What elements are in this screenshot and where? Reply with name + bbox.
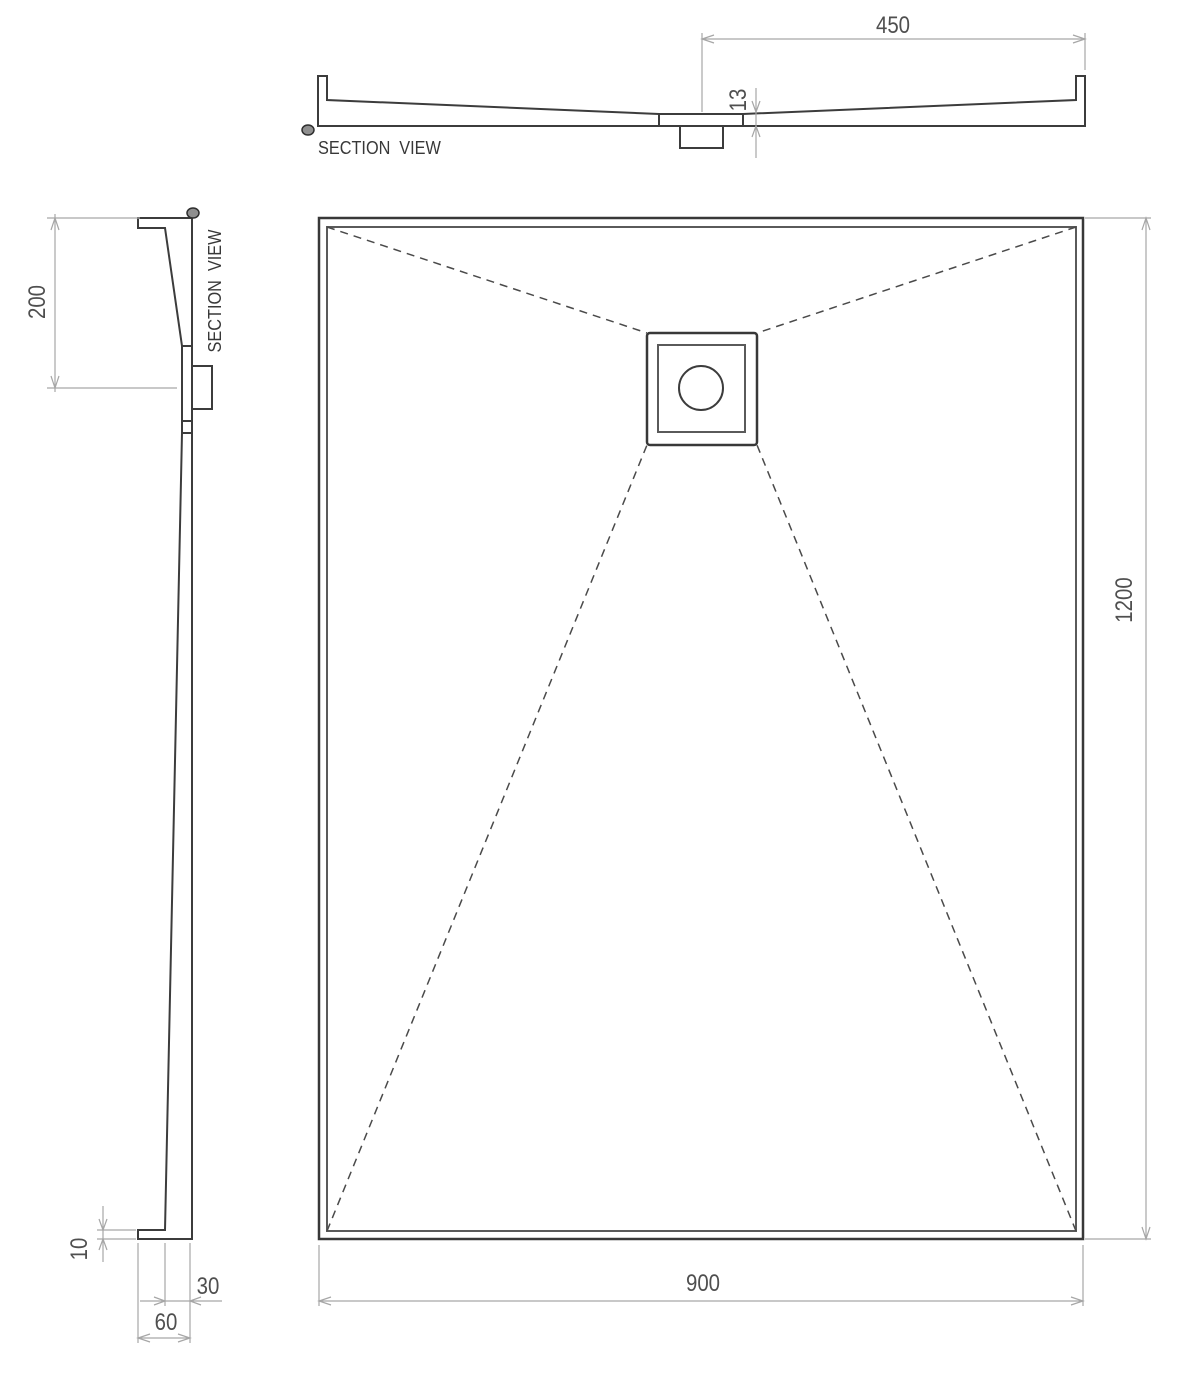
tray-outer-edge — [319, 218, 1083, 1239]
side-section-dimensions — [47, 214, 222, 1343]
side-section-drain-spigot — [192, 366, 212, 409]
dimension-label-450: 450 — [876, 14, 910, 38]
side-section-view-title: SECTION VIEW — [206, 230, 225, 353]
dimension-label-10: 10 — [68, 1238, 92, 1261]
drawing-canvas — [0, 0, 1200, 1388]
top-section-drain-recess-edges — [659, 114, 743, 126]
dimension-label-1200: 1200 — [1113, 577, 1137, 622]
drain-trim-inner — [658, 345, 745, 432]
tray-inner-edge — [327, 227, 1076, 1231]
top-section-dimensions — [702, 33, 1085, 158]
top-section-drain-spigot — [680, 126, 723, 148]
slope-fold-lines — [327, 227, 1076, 1231]
plan-view — [319, 218, 1151, 1306]
side-section-profile — [138, 218, 192, 1239]
dimension-label-200: 200 — [26, 285, 50, 319]
section-cut-marker-icon — [187, 208, 199, 218]
drain-trim-outer — [647, 333, 757, 445]
dimension-label-30: 30 — [197, 1275, 220, 1299]
section-cut-marker-icon — [302, 125, 314, 135]
drain-hole — [679, 366, 723, 410]
dimension-label-13: 13 — [727, 89, 751, 112]
dimension-label-60: 60 — [155, 1311, 178, 1335]
side-section-drain-recess-edges — [182, 346, 192, 433]
dimension-label-900: 900 — [686, 1272, 720, 1296]
cad-drawing-sheet: SECTION VIEW SECTION VIEW 450 13 200 10 … — [0, 0, 1200, 1388]
top-section-view-title: SECTION VIEW — [318, 139, 441, 158]
plan-dimensions — [319, 218, 1151, 1306]
side-section-view — [47, 208, 222, 1343]
